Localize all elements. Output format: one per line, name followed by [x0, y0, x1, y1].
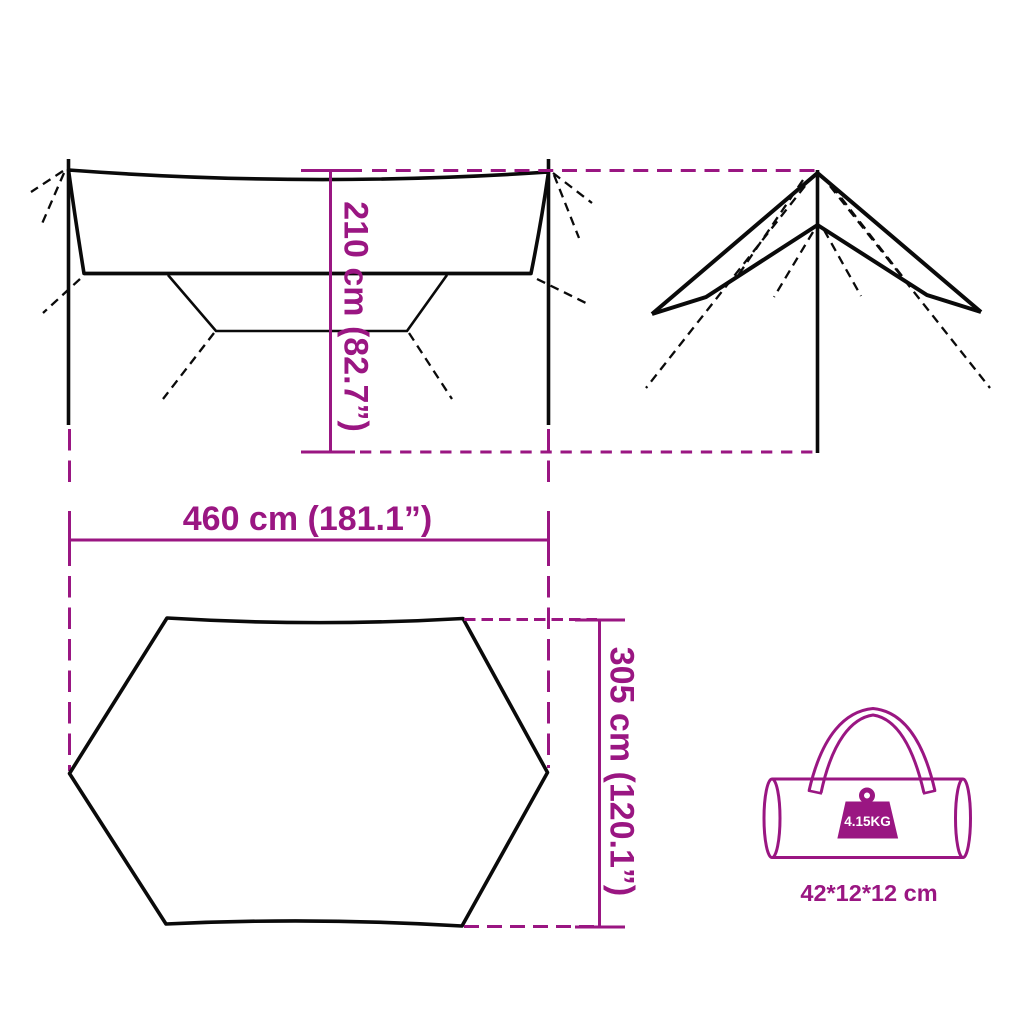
svg-text:42*12*12 cm: 42*12*12 cm: [800, 880, 937, 906]
svg-text:460 cm (181.1”): 460 cm (181.1”): [183, 500, 433, 538]
svg-text:4.15KG: 4.15KG: [844, 814, 891, 829]
svg-text:305 cm (120.1”): 305 cm (120.1”): [603, 647, 641, 897]
svg-text:210 cm (82.7”): 210 cm (82.7”): [337, 201, 375, 432]
